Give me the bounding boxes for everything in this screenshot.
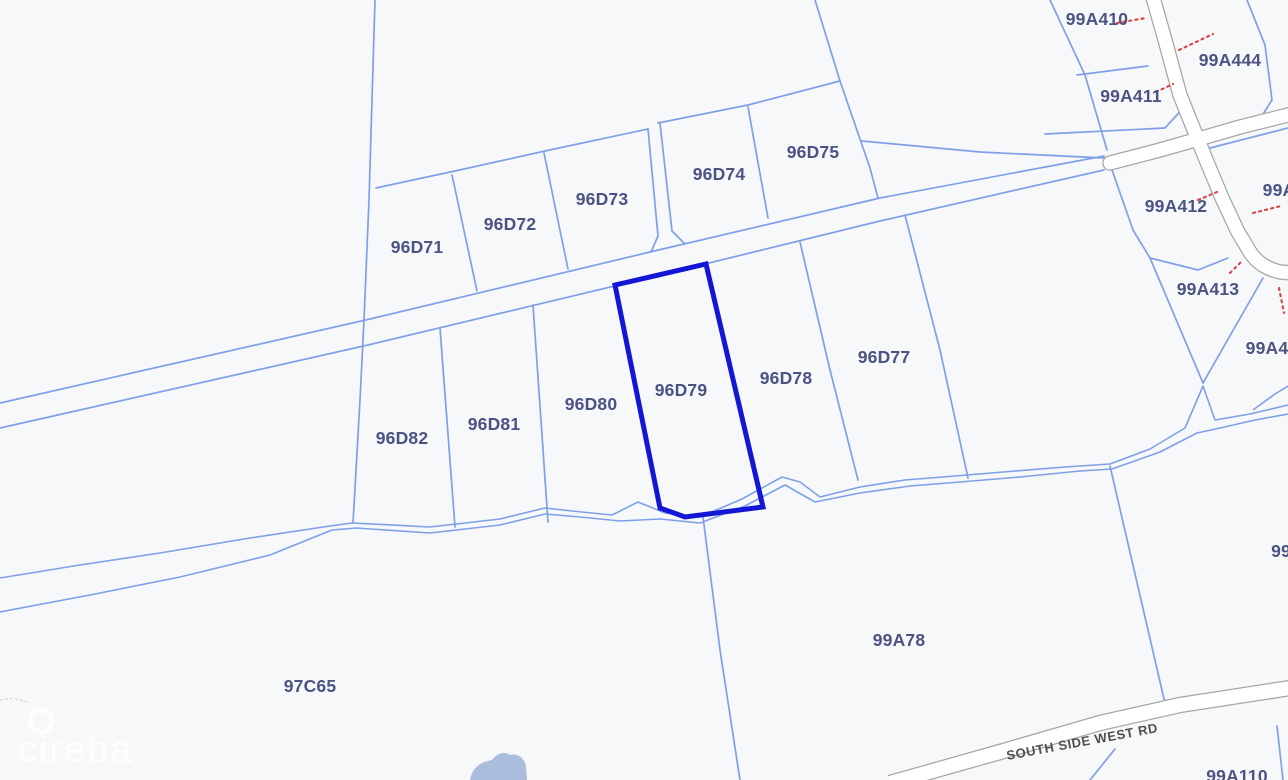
parcel-boundary [1077, 66, 1148, 75]
parcel-label-99A412[interactable]: 99A412 [1145, 196, 1208, 216]
parcel-boundary [660, 123, 685, 244]
road-reserve-line [0, 170, 1104, 428]
stream-line [0, 386, 1288, 578]
parcel-label-97C65[interactable]: 97C65 [284, 676, 337, 696]
parcel-label-96D75[interactable]: 96D75 [787, 142, 840, 162]
parcel-boundary [862, 141, 1104, 158]
parcel-label-99A4-truncated[interactable]: 99A4 [1246, 338, 1288, 358]
watermark: cireba [18, 710, 134, 771]
parcel-label-96D78[interactable]: 96D78 [760, 368, 813, 388]
parcel-label-99A-truncated[interactable]: 99A [1263, 180, 1288, 200]
parcel-label-96D73[interactable]: 96D73 [576, 189, 629, 209]
parcel-label-99A110[interactable]: 99A110 [1206, 766, 1268, 780]
watermark-text: cireba [18, 729, 134, 771]
parcel-label-99A444[interactable]: 99A444 [1199, 50, 1262, 70]
map-canvas[interactable]: 96D71 96D72 96D73 96D74 96D75 96D77 96D7… [0, 0, 1288, 780]
parcel-label-96D71[interactable]: 96D71 [391, 237, 444, 257]
parcel-boundary [452, 175, 477, 291]
red-dotted-line [1253, 206, 1281, 213]
pond [470, 753, 527, 780]
parcel-boundary [840, 81, 878, 198]
parcel-label-96D80[interactable]: 96D80 [565, 394, 618, 414]
parcel-boundary [815, 0, 840, 81]
parcel-label-96D77[interactable]: 96D77 [858, 347, 911, 367]
parcel-label-99-truncated[interactable]: 99 [1271, 541, 1288, 561]
parcel-boundary [1277, 726, 1283, 780]
parcel-boundary [800, 242, 858, 480]
parcel-label-96D82[interactable]: 96D82 [376, 428, 429, 448]
parcel-boundary [1150, 258, 1228, 270]
red-dotted-line [1179, 34, 1213, 50]
parcel-boundary [703, 517, 740, 780]
parcel-boundary [1045, 104, 1187, 134]
parcel-boundary [376, 129, 648, 188]
parcel-label-96D79[interactable]: 96D79 [655, 380, 708, 400]
faint-track [0, 698, 30, 703]
parcel-label-99A78[interactable]: 99A78 [873, 630, 926, 650]
parcel-label-96D81[interactable]: 96D81 [468, 414, 521, 434]
parcel-boundary [440, 328, 455, 527]
parcel-boundary [748, 107, 768, 218]
red-dotted-line [1279, 288, 1284, 313]
parcel-label-99A413[interactable]: 99A413 [1177, 279, 1240, 299]
red-dotted-line [1230, 260, 1243, 273]
parcel-label-99A410[interactable]: 99A410 [1066, 9, 1129, 29]
parcel-boundary [905, 215, 968, 478]
parcel-boundary [544, 153, 568, 269]
parcel-boundary [648, 129, 658, 252]
parcel-label-96D72[interactable]: 96D72 [484, 214, 537, 234]
stream-line [0, 414, 1288, 612]
roads [890, 0, 1288, 780]
parcel-label-99A411[interactable]: 99A411 [1100, 86, 1162, 106]
parcel-boundary [533, 305, 548, 522]
parcel-boundaries [0, 0, 1288, 780]
parcel-boundary [353, 0, 375, 523]
parcel-boundary [1110, 466, 1167, 712]
parcel-label-96D74[interactable]: 96D74 [693, 164, 746, 184]
parcel-boundary [1090, 749, 1115, 780]
